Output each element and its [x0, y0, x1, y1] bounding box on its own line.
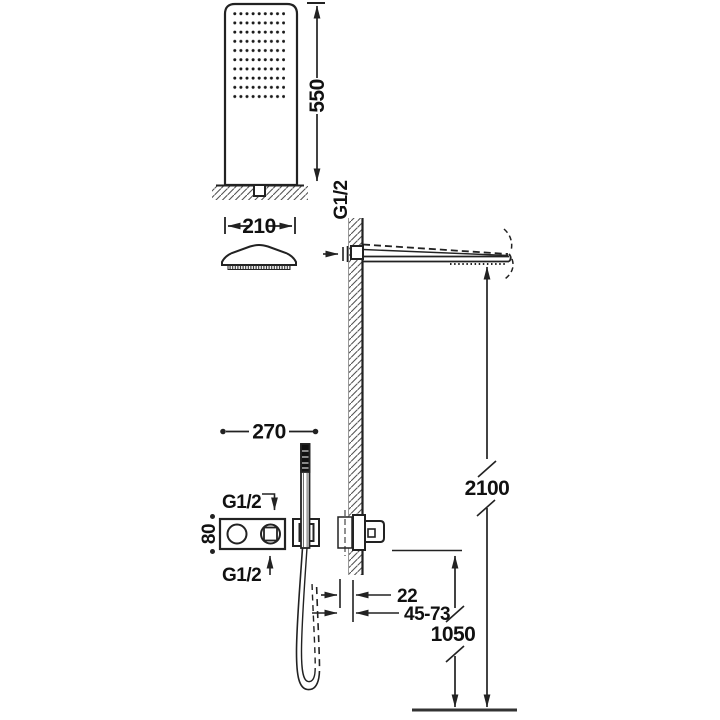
shower-hose: [297, 548, 320, 690]
dim-270-left-dot: [220, 429, 226, 435]
dim-270-right-dot: [313, 429, 319, 435]
hose-inner-dashed: [312, 583, 315, 674]
mixer-top-inlet: G1/2: [222, 492, 275, 513]
rain-head-profile: [222, 245, 296, 270]
label-210: 210: [242, 215, 276, 238]
head-dome: [222, 245, 296, 265]
dim-column-height: 550: [306, 3, 329, 181]
cascade-spout-side-view: [351, 229, 513, 279]
wall-outlet-side-view: [338, 510, 384, 556]
label-g12-bottom: G1/2: [222, 565, 261, 586]
spout-end-cap: [509, 254, 511, 262]
label-45-73: 45-73: [404, 604, 450, 625]
dim-outlet-height: 1050: [431, 556, 476, 707]
hose-outer-dashed: [317, 583, 320, 678]
label-270: 270: [252, 421, 286, 444]
shower-installation-diagram: 550 210 G1/2: [0, 0, 720, 720]
dim-80-top-dot: [210, 514, 215, 519]
mixer-top-inlet-arrow: [262, 494, 275, 510]
nozzle-dot-grid: [233, 9, 285, 99]
hose-inner-solid: [302, 548, 315, 682]
drawing-canvas: 550 210 G1/2: [0, 0, 720, 720]
spout-thread-annotation: G1/2: [323, 180, 352, 262]
dim-head-width: 210: [225, 215, 295, 238]
outlet-flange: [353, 515, 365, 550]
dim-80-bottom-dot: [210, 549, 215, 554]
column-base-tab: [254, 185, 265, 196]
head-nozzle-band: [228, 265, 290, 270]
dim-2100-break-bottom: [477, 500, 495, 516]
label-2100: 2100: [465, 477, 510, 500]
mixer-left-knob: [228, 525, 247, 544]
mixer-bottom-inlet: G1/2: [222, 556, 270, 586]
dim-2100-break-top: [478, 461, 496, 477]
dim-recess-depth: 45-73: [312, 604, 450, 625]
spout-end-arc-upper: [504, 229, 512, 251]
hand-shower: [293, 444, 319, 548]
dim-mixer-height: 80: [199, 514, 220, 554]
dim-mixer-width: 270: [220, 421, 318, 444]
shower-column-front-view: [212, 4, 308, 200]
label-g12-top: G1/2: [222, 492, 261, 513]
dim-finish-gap: 22: [321, 579, 417, 622]
label-g12-spout: G1/2: [331, 180, 352, 219]
thermostatic-mixer-front-view: [220, 519, 285, 549]
label-80: 80: [199, 524, 220, 544]
label-550: 550: [306, 79, 329, 113]
spout-wall-fitting: [351, 246, 363, 259]
label-1050: 1050: [431, 623, 476, 646]
